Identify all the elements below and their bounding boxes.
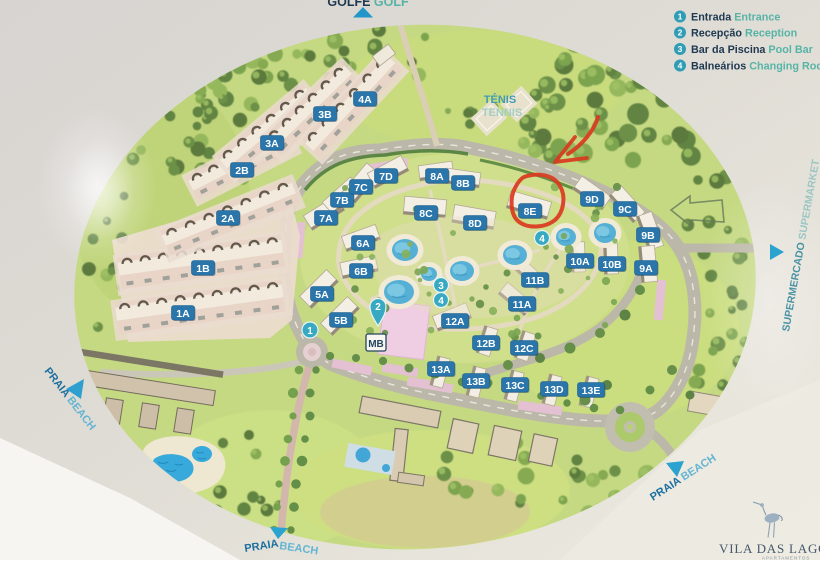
svg-text:3A: 3A	[265, 138, 279, 150]
svg-text:VILA DAS LAGOAS: VILA DAS LAGOAS	[719, 541, 820, 556]
svg-text:9C: 9C	[618, 204, 632, 216]
svg-text:10B: 10B	[602, 259, 622, 271]
svg-text:GOLFE GOLF: GOLFE GOLF	[327, 0, 409, 9]
svg-text:13E: 13E	[582, 385, 601, 397]
svg-text:1B: 1B	[196, 263, 210, 275]
svg-text:12C: 12C	[514, 343, 534, 355]
svg-text:3B: 3B	[318, 109, 332, 121]
svg-text:Bar da Piscina Pool Bar: Bar da Piscina Pool Bar	[691, 44, 814, 56]
svg-text:APARTAMENTOS: APARTAMENTOS	[762, 556, 810, 561]
svg-text:4A: 4A	[358, 94, 372, 106]
svg-text:4: 4	[539, 234, 545, 245]
svg-text:12A: 12A	[445, 316, 465, 328]
svg-text:4: 4	[678, 61, 683, 71]
svg-text:5B: 5B	[334, 315, 348, 327]
svg-text:MB: MB	[368, 339, 384, 350]
svg-text:Recepção Reception: Recepção Reception	[691, 28, 797, 40]
svg-text:1A: 1A	[176, 308, 190, 320]
svg-text:8C: 8C	[419, 208, 433, 220]
svg-text:13C: 13C	[505, 380, 525, 392]
svg-text:1: 1	[307, 326, 313, 337]
svg-text:13A: 13A	[431, 364, 451, 376]
svg-text:10A: 10A	[570, 256, 590, 268]
svg-text:3: 3	[678, 44, 683, 54]
svg-text:6B: 6B	[354, 266, 368, 278]
svg-text:8D: 8D	[468, 218, 482, 230]
svg-text:2B: 2B	[235, 165, 249, 177]
svg-text:4: 4	[438, 296, 444, 307]
svg-text:11B: 11B	[526, 275, 545, 287]
svg-text:1: 1	[678, 12, 683, 22]
svg-text:2: 2	[375, 302, 381, 313]
svg-text:9B: 9B	[641, 230, 655, 242]
svg-text:Entrada Entrance: Entrada Entrance	[691, 12, 780, 24]
svg-text:8B: 8B	[456, 178, 470, 190]
svg-text:7A: 7A	[319, 213, 333, 225]
svg-text:9A: 9A	[639, 263, 653, 275]
svg-text:12B: 12B	[476, 338, 496, 350]
svg-text:5A: 5A	[315, 289, 329, 301]
svg-text:11A: 11A	[513, 299, 532, 311]
svg-text:8E: 8E	[524, 206, 537, 218]
svg-text:2A: 2A	[221, 213, 235, 225]
svg-text:Balneários Changing Rooms: Balneários Changing Rooms	[691, 61, 820, 73]
svg-text:7D: 7D	[379, 171, 393, 183]
svg-text:3: 3	[438, 281, 444, 292]
svg-text:2: 2	[678, 28, 683, 38]
svg-text:8A: 8A	[430, 171, 444, 183]
svg-text:7B: 7B	[335, 195, 349, 207]
svg-text:13D: 13D	[544, 384, 564, 396]
svg-text:9D: 9D	[585, 194, 599, 206]
svg-text:6A: 6A	[356, 238, 370, 250]
svg-text:7C: 7C	[354, 182, 368, 194]
svg-text:13B: 13B	[466, 376, 486, 388]
